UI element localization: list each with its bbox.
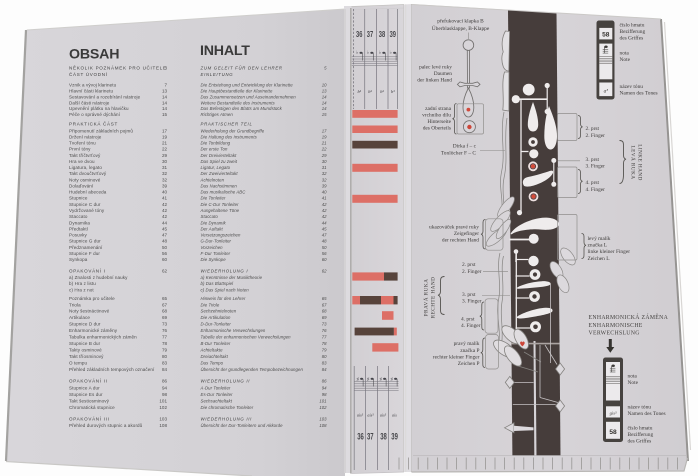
svg-text:NĚKOLIK POZNÁMEK PRO UČITELE: NĚKOLIK POZNÁMEK PRO UČITELE [69, 64, 167, 71]
svg-text:Takt tříčtvrťový: Takt tříčtvrťový [69, 153, 101, 158]
svg-text:RECHTE HAND: RECHTE HAND [431, 277, 437, 319]
svg-text:37: 37 [367, 432, 374, 442]
svg-text:58: 58 [609, 429, 617, 436]
svg-text:Die Tonleiter: Die Tonleiter [201, 196, 226, 201]
svg-text:Zeigefinger: Zeigefinger [454, 230, 479, 237]
svg-text:14: 14 [322, 100, 327, 105]
svg-text:Die Tonbildung: Die Tonbildung [201, 141, 231, 146]
svg-text:ENHARMONISCHE: ENHARMONISCHE [589, 323, 643, 329]
svg-text:Stupnice D dur: Stupnice D dur [69, 322, 101, 327]
svg-text:Die Hauptbestandteile der Klar: Die Hauptbestandteile der Klarinette [201, 88, 273, 93]
svg-text:Takt tříosminový: Takt tříosminový [69, 354, 104, 359]
svg-text:des Griffes: des Griffes [628, 437, 652, 444]
svg-text:Sechsachteltakt: Sechsachteltakt [201, 398, 233, 403]
svg-text:79: 79 [322, 347, 327, 352]
svg-text:Dolaďování: Dolaďování [69, 183, 94, 188]
svg-text:WIEDERHOLUNG I: WIEDERHOLUNG I [201, 269, 249, 274]
svg-text:Der erste Ton: Der erste Ton [201, 147, 228, 152]
svg-text:4. prst: 4. prst [586, 180, 600, 186]
svg-text:Tabulka enharmonických záměn: Tabulka enharmonických záměn [69, 335, 137, 340]
svg-text:Tonlöcher F – C: Tonlöcher F – C [441, 151, 477, 157]
svg-text:Das Zusammensetzen und Auseina: Das Zusammensetzen und Auseinandernehmen [201, 94, 297, 99]
svg-text:des Griffes: des Griffes [620, 35, 644, 42]
svg-text:30: 30 [322, 159, 327, 164]
svg-text:Ligatur, Legato: Ligatur, Legato [201, 165, 231, 170]
svg-text:13: 13 [322, 88, 327, 93]
svg-text:Stupnice Es dur: Stupnice Es dur [69, 392, 103, 397]
svg-text:ais³: ais³ [357, 413, 364, 418]
svg-text:37: 37 [367, 29, 374, 39]
svg-text:Die Synkope: Die Synkope [201, 257, 227, 262]
svg-text:Hra ve dvou: Hra ve dvou [69, 159, 95, 164]
svg-text:32: 32 [322, 177, 327, 182]
svg-text:Überblasklappe, B-Klappe: Überblasklappe, B-Klappe [432, 25, 490, 32]
svg-text:103: 103 [159, 417, 167, 422]
svg-text:Stupnice B dur: Stupnice B dur [69, 341, 101, 346]
svg-text:Der Dreivierteltakt: Der Dreivierteltakt [201, 153, 238, 158]
svg-text:4. Finger: 4. Finger [586, 187, 606, 193]
svg-text:OPAKOVÁNÍ II: OPAKOVÁNÍ II [69, 378, 108, 384]
svg-text:Note: Note [620, 57, 631, 63]
svg-text:32: 32 [162, 171, 168, 176]
svg-text:14: 14 [162, 100, 168, 105]
svg-text:22: 22 [321, 147, 327, 152]
svg-text:Dynamika: Dynamika [69, 220, 90, 225]
svg-text:b) Hra z listu: b) Hra z listu [69, 281, 96, 286]
svg-text:Wiederholung der Grundbegriffe: Wiederholung der Grundbegriffe [201, 128, 265, 133]
svg-text:102: 102 [159, 405, 167, 410]
svg-text:44: 44 [162, 220, 168, 225]
svg-text:38: 38 [380, 432, 387, 442]
svg-text:ENHARMONICKÁ ZÁMĚNA: ENHARMONICKÁ ZÁMĚNA [589, 313, 669, 321]
svg-text:Ligatura, legato: Ligatura, legato [69, 165, 102, 170]
svg-text:PRAKTISCHER TEIL: PRAKTISCHER TEIL [201, 122, 253, 127]
svg-text:14: 14 [322, 106, 327, 111]
svg-text:Zeichen P: Zeichen P [458, 361, 480, 367]
svg-text:Dírka f – c: Dírka f – c [453, 143, 477, 150]
svg-text:Das musikalische ABC: Das musikalische ABC [201, 190, 247, 195]
svg-text:Triola: Triola [69, 302, 81, 307]
svg-text:47: 47 [162, 233, 168, 238]
svg-text:značka L: značka L [588, 243, 608, 249]
svg-text:ZUM GELEIT FÜR DEN LEHRER: ZUM GELEIT FÜR DEN LEHRER [200, 66, 283, 71]
svg-text:45: 45 [322, 226, 327, 231]
svg-text:39: 39 [322, 183, 327, 188]
svg-text:67: 67 [162, 302, 168, 307]
svg-text:Artikulace: Artikulace [69, 315, 90, 320]
svg-text:B-Dur Tonleiter: B-Dur Tonleiter [201, 341, 231, 346]
svg-text:19: 19 [322, 134, 327, 139]
svg-text:77: 77 [322, 335, 327, 340]
svg-text:17: 17 [162, 128, 168, 133]
svg-text:69: 69 [162, 315, 168, 320]
svg-text:21: 21 [321, 141, 327, 146]
svg-text:101: 101 [319, 398, 327, 403]
svg-text:73: 73 [322, 322, 327, 327]
svg-text:2. Finger: 2. Finger [462, 269, 482, 275]
svg-text:36: 36 [357, 432, 364, 442]
svg-text:80: 80 [322, 354, 327, 359]
svg-text:Vznik a vývoj klarinetu: Vznik a vývoj klarinetu [69, 83, 117, 88]
svg-text:der linken Hand: der linken Hand [417, 77, 452, 83]
svg-text:číslo hmatu: číslo hmatu [620, 23, 645, 29]
svg-text:42: 42 [322, 208, 327, 213]
svg-text:Stupnice A dur: Stupnice A dur [69, 385, 100, 390]
svg-text:15: 15 [322, 112, 327, 117]
svg-text:Vorzeichen: Vorzeichen [201, 245, 224, 250]
svg-text:zadní strana: zadní strana [425, 106, 451, 112]
svg-text:36: 36 [356, 29, 363, 39]
svg-text:Das Befestigen des Blatts am M: Das Befestigen des Blatts am Mundstück [201, 106, 283, 111]
svg-text:14: 14 [162, 106, 168, 111]
svg-text:76: 76 [162, 328, 168, 333]
svg-text:48: 48 [322, 239, 327, 244]
svg-text:Note: Note [628, 380, 639, 386]
svg-text:80: 80 [162, 354, 168, 359]
svg-text:32: 32 [162, 177, 168, 182]
svg-text:Dreiachteltakt: Dreiachteltakt [201, 354, 229, 359]
svg-text:Přehled základních tempových o: Přehled základních tempových označení [69, 367, 155, 372]
svg-text:A-Dur Tonleiter: A-Dur Tonleiter [200, 385, 231, 390]
svg-text:29: 29 [321, 153, 327, 158]
svg-text:EINLEITUNG: EINLEITUNG [201, 72, 234, 77]
svg-text:Hudební abeceda: Hudební abeceda [69, 190, 107, 195]
svg-text:31: 31 [162, 165, 168, 170]
svg-text:14: 14 [162, 94, 168, 99]
svg-text:Synkopa: Synkopa [69, 257, 88, 262]
svg-text:Přehled durových stupnic a ako: Přehled durových stupnic a akordů [69, 422, 143, 428]
svg-text:58: 58 [602, 32, 610, 39]
svg-text:10: 10 [322, 83, 327, 88]
svg-text:gis³: gis³ [610, 411, 617, 416]
svg-text:42: 42 [162, 202, 168, 207]
svg-text:31: 31 [322, 165, 327, 170]
svg-text:Tvoření tónu: Tvoření tónu [69, 141, 96, 146]
svg-text:78: 78 [322, 341, 327, 346]
svg-text:a) Kenntnisse der Musiktheori: a) Kenntnisse der Musiktheorie [201, 275, 263, 280]
svg-text:OPAKOVÁNÍ I: OPAKOVÁNÍ I [69, 268, 106, 274]
svg-text:G-Dur-Tonleiter: G-Dur-Tonleiter [201, 239, 232, 244]
svg-text:LINKE HAND: LINKE HAND [637, 144, 643, 181]
svg-text:39: 39 [391, 432, 398, 442]
svg-text:48: 48 [162, 239, 168, 244]
svg-text:Tabelle der enharmonischen Ver: Tabelle der enharmonischen Verwechslunge… [201, 335, 292, 340]
svg-text:29: 29 [162, 153, 168, 158]
svg-text:98: 98 [322, 392, 327, 397]
svg-text:PRAVÁ RUKA: PRAVÁ RUKA [422, 279, 430, 317]
svg-text:Vydržované tóny: Vydržované tóny [69, 208, 105, 213]
svg-text:Zeichen L: Zeichen L [588, 256, 610, 262]
svg-text:♭: ♭ [389, 50, 391, 56]
svg-text:Der Zweivierteltakt: Der Zweivierteltakt [201, 171, 239, 176]
svg-text:41: 41 [162, 196, 168, 201]
svg-text:b) Das Blattspiel: b) Das Blattspiel [201, 281, 235, 286]
svg-text:17: 17 [322, 128, 327, 133]
svg-text:LEVÁ RUKA: LEVÁ RUKA [630, 145, 638, 179]
svg-text:2. prst: 2. prst [586, 126, 600, 132]
svg-text:Upevnění plátku na hlavičku: Upevnění plátku na hlavičku [69, 106, 129, 111]
svg-text:50: 50 [322, 245, 327, 250]
svg-text:60: 60 [162, 257, 168, 262]
svg-text:102: 102 [319, 405, 327, 410]
svg-text:Übersicht der grundlegenden Te: Übersicht der grundlegenden Tempobezeich… [201, 367, 304, 372]
svg-text:Stupnice: Stupnice [69, 196, 88, 201]
svg-text:84: 84 [322, 367, 327, 372]
svg-text:13: 13 [162, 88, 168, 93]
svg-text:Achtelnoten: Achtelnoten [200, 177, 225, 182]
svg-text:Péče o správné dýchání: Péče o správné dýchání [69, 112, 121, 117]
svg-text:50: 50 [162, 245, 168, 250]
svg-text:a) Znalosti z hudební nauky: a) Znalosti z hudební nauky [69, 275, 128, 280]
svg-text:56: 56 [322, 251, 327, 256]
svg-text:ais³: ais³ [380, 413, 387, 418]
svg-text:palec levé ruky: palec levé ruky [419, 65, 452, 71]
svg-text:108: 108 [319, 423, 327, 428]
svg-text:Noty šestnáctinové: Noty šestnáctinové [69, 309, 110, 314]
svg-text:Daumen: Daumen [434, 71, 453, 77]
svg-text:Das Tempo: Das Tempo [201, 360, 224, 365]
svg-text:67: 67 [322, 302, 327, 307]
svg-text:Noty osminové: Noty osminové [69, 177, 101, 182]
svg-text:Namen des Tones: Namen des Tones [620, 90, 658, 96]
svg-text:♭: ♭ [367, 50, 369, 56]
svg-text:15: 15 [162, 112, 168, 117]
svg-text:41: 41 [322, 196, 327, 201]
svg-text:Die Triole: Die Triole [201, 302, 220, 307]
svg-text:3. prst: 3. prst [462, 292, 476, 298]
svg-text:73: 73 [162, 322, 168, 327]
svg-text:Hinweis für den Lehrer: Hinweis für den Lehrer [201, 296, 246, 301]
svg-text:Takt dvoučtvrťový: Takt dvoučtvrťový [69, 171, 107, 176]
svg-text:69: 69 [322, 315, 327, 320]
svg-text:83: 83 [162, 360, 168, 365]
svg-text:rechter kleiner Finger: rechter kleiner Finger [433, 354, 480, 360]
svg-text:42: 42 [162, 214, 168, 219]
svg-text:22: 22 [162, 147, 168, 152]
svg-text:Die Haltung des Instruments: Die Haltung des Instruments [201, 134, 258, 139]
svg-text:2. prst: 2. prst [462, 262, 476, 268]
svg-text:19: 19 [162, 134, 168, 139]
svg-text:77: 77 [162, 335, 168, 340]
svg-text:Achteltakte: Achteltakte [200, 347, 224, 352]
svg-text:44: 44 [322, 220, 327, 225]
svg-text:F-Dur Tonleiter: F-Dur Tonleiter [201, 251, 231, 256]
svg-text:65: 65 [322, 296, 327, 301]
svg-text:3. Finger: 3. Finger [462, 298, 482, 304]
svg-text:OBSAH: OBSAH [69, 47, 119, 63]
svg-text:název tónu: název tónu [628, 404, 652, 410]
svg-text:Die chromatische Tonleiter: Die chromatische Tonleiter [201, 405, 254, 410]
svg-text:c) Hra z not: c) Hra z not [69, 288, 94, 293]
svg-text:pravý malík: pravý malík [454, 341, 480, 347]
svg-text:42: 42 [322, 214, 327, 219]
svg-text:♭: ♭ [379, 50, 381, 56]
svg-text:65: 65 [162, 296, 168, 301]
svg-text:38: 38 [379, 29, 386, 39]
svg-text:Takt šestiosminový: Takt šestiosminový [69, 398, 110, 403]
svg-text:značka P: značka P [460, 348, 479, 354]
svg-text:Posuvky: Posuvky [69, 233, 88, 238]
svg-text:60: 60 [322, 257, 327, 262]
svg-text:INHALT: INHALT [200, 43, 250, 59]
svg-text:78: 78 [162, 341, 168, 346]
svg-text:Bezifferung: Bezifferung [620, 28, 646, 35]
svg-text:47: 47 [322, 233, 327, 238]
svg-text:číslo hmatu: číslo hmatu [628, 425, 653, 431]
svg-text:ais: ais [392, 413, 397, 418]
svg-text:Die C-Dur Tonleiter: Die C-Dur Tonleiter [201, 202, 240, 207]
svg-text:VERWECHSLUNG: VERWECHSLUNG [589, 330, 640, 336]
svg-text:Stupnice F dur: Stupnice F dur [69, 251, 100, 256]
svg-text:Staccato: Staccato [69, 214, 88, 219]
svg-text:nota: nota [620, 51, 630, 57]
svg-text:45: 45 [162, 226, 168, 231]
svg-text:108: 108 [159, 423, 167, 428]
svg-text:O tempu: O tempu [69, 360, 88, 365]
svg-text:14: 14 [322, 94, 327, 99]
svg-text:Das Spiel zu zweit: Das Spiel zu zweit [201, 159, 238, 164]
svg-text:Hinterseite: Hinterseite [427, 119, 451, 125]
svg-text:3. prst: 3. prst [586, 157, 600, 163]
svg-text:des Oberteils: des Oberteils [423, 126, 451, 132]
svg-text:levý malík: levý malík [588, 236, 611, 242]
svg-text:101: 101 [159, 398, 167, 403]
svg-text:Chromatická stupnice: Chromatická stupnice [69, 405, 115, 410]
svg-text:Enharmonické záměny: Enharmonické záměny [69, 328, 118, 333]
svg-text:Die Artikulation: Die Artikulation [201, 315, 232, 320]
svg-text:62: 62 [162, 269, 168, 274]
svg-text:linke kleiner Finger: linke kleiner Finger [588, 249, 631, 255]
svg-text:Hlavní části klarinetu: Hlavní části klarinetu [69, 88, 114, 93]
svg-text:3. Finger: 3. Finger [586, 164, 606, 170]
svg-text:ukazováček pravé ruky: ukazováček pravé ruky [429, 225, 479, 231]
svg-text:Další části nástroje: Další části nástroje [69, 100, 110, 105]
svg-text:WIEDERHOLUNG II: WIEDERHOLUNG II [201, 379, 251, 384]
svg-text:83: 83 [322, 360, 327, 365]
svg-text:Es-Dur Tonleiter: Es-Dur Tonleiter [201, 392, 234, 397]
svg-text:2. Finger: 2. Finger [586, 133, 606, 139]
svg-text:40: 40 [162, 190, 168, 195]
svg-text:a³: a³ [604, 89, 609, 95]
svg-text:Übersicht der Dur-Tonleitern u: Übersicht der Dur-Tonleitern und Akkorde [201, 423, 284, 428]
svg-text:40: 40 [322, 190, 327, 195]
svg-text:32: 32 [322, 171, 327, 176]
svg-text:Stupnice C dur: Stupnice C dur [69, 202, 101, 207]
svg-text:94: 94 [162, 385, 168, 390]
svg-text:Stupnice G dur: Stupnice G dur [69, 239, 101, 244]
svg-text:der rechten Hand: der rechten Hand [442, 238, 479, 244]
svg-text:Ausgehaltene Töne: Ausgehaltene Töne [200, 208, 240, 213]
svg-text:PRAKTICKÁ ČÁST: PRAKTICKÁ ČÁST [69, 121, 118, 127]
svg-text:První tóny: První tóny [69, 147, 91, 152]
svg-text:86: 86 [322, 379, 327, 384]
svg-text:84: 84 [162, 367, 168, 372]
svg-text:Takty osminové: Takty osminové [69, 347, 102, 352]
svg-text:nota: nota [628, 374, 638, 380]
svg-text:Staccato: Staccato [201, 214, 219, 219]
svg-text:Bezifferung: Bezifferung [628, 431, 654, 438]
svg-text:Richtiges Atmen: Richtiges Atmen [201, 112, 234, 117]
svg-text:39: 39 [390, 29, 397, 39]
svg-text:Versetzungszeichen: Versetzungszeichen [201, 233, 242, 238]
svg-text:79: 79 [162, 347, 168, 352]
svg-text:D-Dur-Tonleiter: D-Dur-Tonleiter [201, 322, 232, 327]
svg-text:Sestavování a rozebírání nástr: Sestavování a rozebírání nástroje [69, 94, 141, 99]
svg-text:Sechzehntelnoten: Sechzehntelnoten [201, 309, 237, 314]
svg-text:68: 68 [322, 309, 327, 314]
svg-text:68: 68 [162, 309, 168, 314]
svg-text:42: 42 [162, 208, 168, 213]
svg-text:název tónu: název tónu [620, 84, 644, 90]
svg-text:Namen des Tones: Namen des Tones [628, 411, 666, 417]
svg-text:4. prst: 4. prst [461, 316, 475, 322]
svg-text:Předtaktí: Předtaktí [69, 226, 89, 231]
svg-text:Der Auftakt: Der Auftakt [201, 226, 224, 231]
svg-text:103: 103 [319, 417, 327, 422]
svg-text:56: 56 [162, 251, 168, 256]
svg-text:Die Entstehung und Entwicklung: Die Entstehung und Entwicklung der Klari… [201, 83, 294, 88]
svg-text:vrchního dílu: vrchního dílu [422, 113, 451, 119]
svg-text:Předznamenání: Předznamenání [69, 245, 103, 250]
svg-text:76: 76 [322, 328, 327, 333]
svg-text:30: 30 [162, 159, 168, 164]
svg-text:Enharmonische Verwechslungen: Enharmonische Verwechslungen [201, 328, 266, 333]
svg-text:ČÁST ÚVODNÍ: ČÁST ÚVODNÍ [69, 71, 108, 77]
svg-text:Das Nachstimmen: Das Nachstimmen [201, 183, 238, 188]
svg-text:94: 94 [322, 385, 327, 390]
svg-text:39: 39 [162, 183, 168, 188]
svg-text:c) Das Spiel nach Noten: c) Das Spiel nach Noten [201, 288, 250, 293]
svg-text:Poznámka pro učitele: Poznámka pro učitele [69, 296, 115, 301]
svg-text:Die Dynamik: Die Dynamik [201, 220, 227, 225]
svg-text:♭: ♭ [356, 50, 358, 56]
svg-text:42: 42 [322, 202, 327, 207]
svg-text:Připomenutí základních pojmů: Připomenutí základních pojmů [69, 127, 133, 133]
svg-text:OPAKOVÁNÍ III: OPAKOVÁNÍ III [69, 416, 110, 422]
svg-text:98: 98 [162, 392, 168, 397]
svg-text:WIEDERHOLUNG III: WIEDERHOLUNG III [201, 417, 253, 422]
svg-text:ais³: ais³ [367, 413, 374, 418]
svg-text:62: 62 [322, 269, 327, 274]
svg-text:86: 86 [162, 379, 168, 384]
svg-text:4. Finger: 4. Finger [461, 323, 481, 329]
svg-text:Držení nástroje: Držení nástroje [69, 134, 102, 139]
svg-text:Weitere Bestandteile des Instr: Weitere Bestandteile des Instruments [201, 100, 276, 105]
svg-text:21: 21 [162, 141, 168, 146]
svg-text:přefukovací klapka B: přefukovací klapka B [437, 17, 484, 24]
